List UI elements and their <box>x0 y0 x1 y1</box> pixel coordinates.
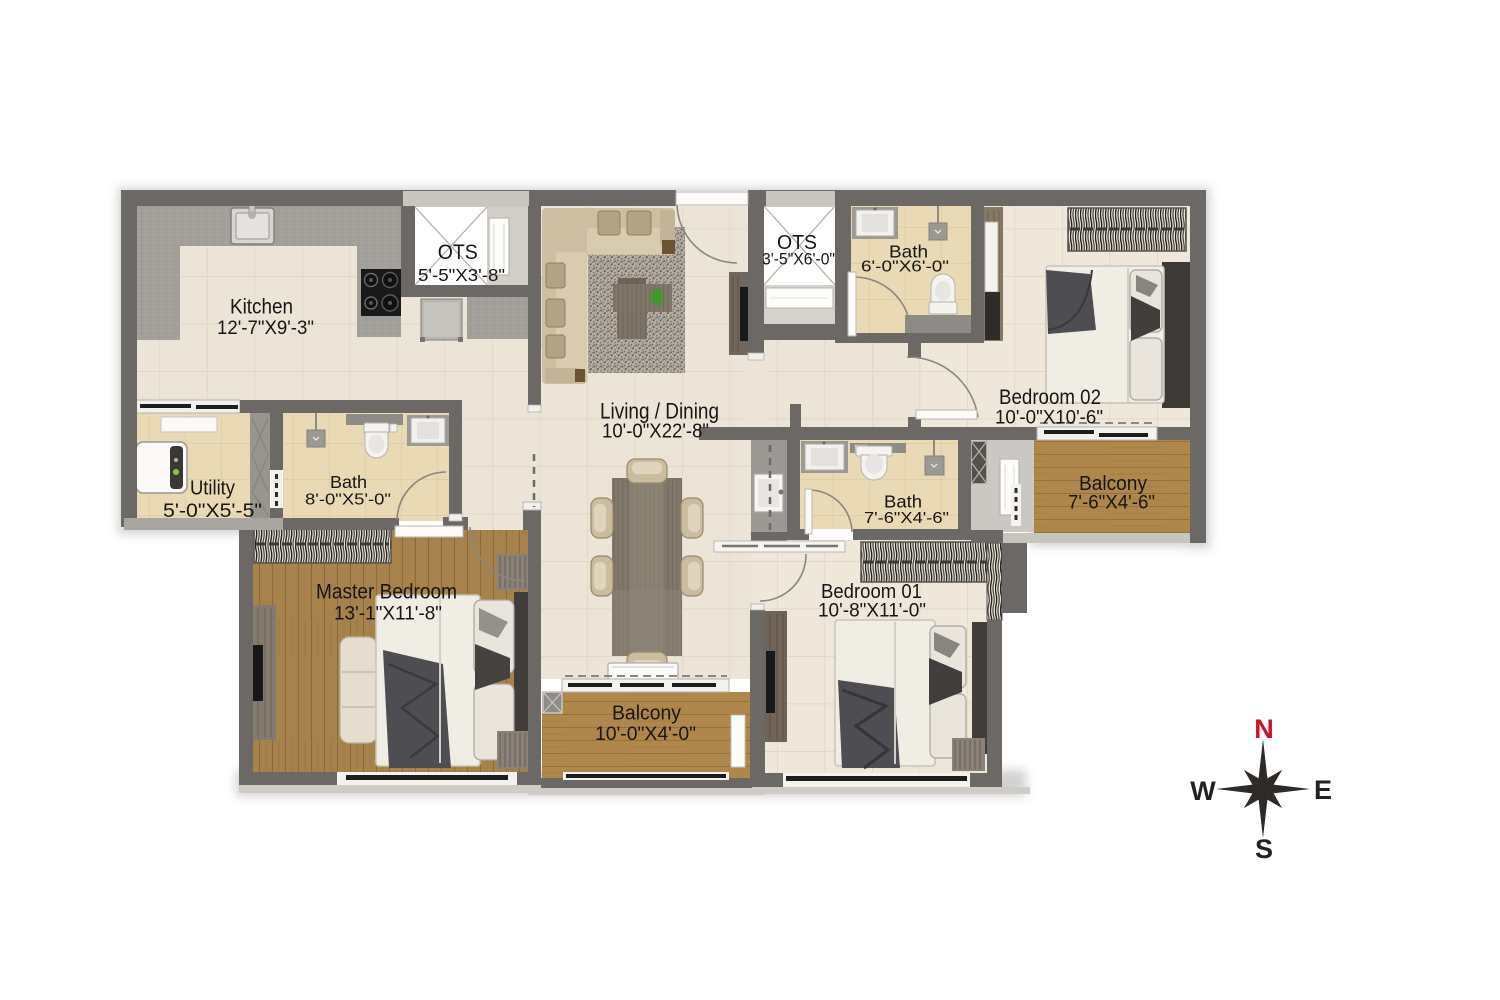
svg-text:5'-5"X3'-8": 5'-5"X3'-8" <box>418 265 505 285</box>
svg-text:8'-0"X5'-0": 8'-0"X5'-0" <box>305 492 391 509</box>
svg-text:Bath: Bath <box>330 472 367 492</box>
svg-text:S: S <box>1255 834 1273 864</box>
svg-text:OTS: OTS <box>438 241 478 264</box>
svg-text:10'-0"X22'-8": 10'-0"X22'-8" <box>602 420 709 443</box>
svg-text:Kitchen: Kitchen <box>230 296 293 319</box>
svg-text:Bath: Bath <box>884 492 922 512</box>
svg-text:7'-6"X4'-6": 7'-6"X4'-6" <box>864 510 949 527</box>
svg-text:Balcony: Balcony <box>612 702 682 725</box>
svg-text:Utility: Utility <box>190 478 235 500</box>
svg-text:3'-5"X6'-0": 3'-5"X6'-0" <box>762 251 835 269</box>
svg-text:10'-0"X10'-6": 10'-0"X10'-6" <box>995 407 1103 429</box>
svg-text:N: N <box>1254 714 1274 744</box>
svg-text:13'-1"X11'-8": 13'-1"X11'-8" <box>334 603 442 625</box>
svg-text:5'-0"X5'-5": 5'-0"X5'-5" <box>163 500 262 522</box>
svg-text:12'-7"X9'-3": 12'-7"X9'-3" <box>217 317 314 339</box>
svg-text:E: E <box>1314 775 1332 805</box>
svg-text:Master Bedroom: Master Bedroom <box>316 581 457 604</box>
svg-text:W: W <box>1190 776 1216 806</box>
svg-text:10'-8"X11'-0": 10'-8"X11'-0" <box>818 600 926 622</box>
svg-text:7'-6"X4'-6": 7'-6"X4'-6" <box>1068 493 1155 514</box>
svg-text:10'-0"X4'-0": 10'-0"X4'-0" <box>595 723 696 745</box>
svg-text:6'-0"X6'-0": 6'-0"X6'-0" <box>861 259 949 276</box>
